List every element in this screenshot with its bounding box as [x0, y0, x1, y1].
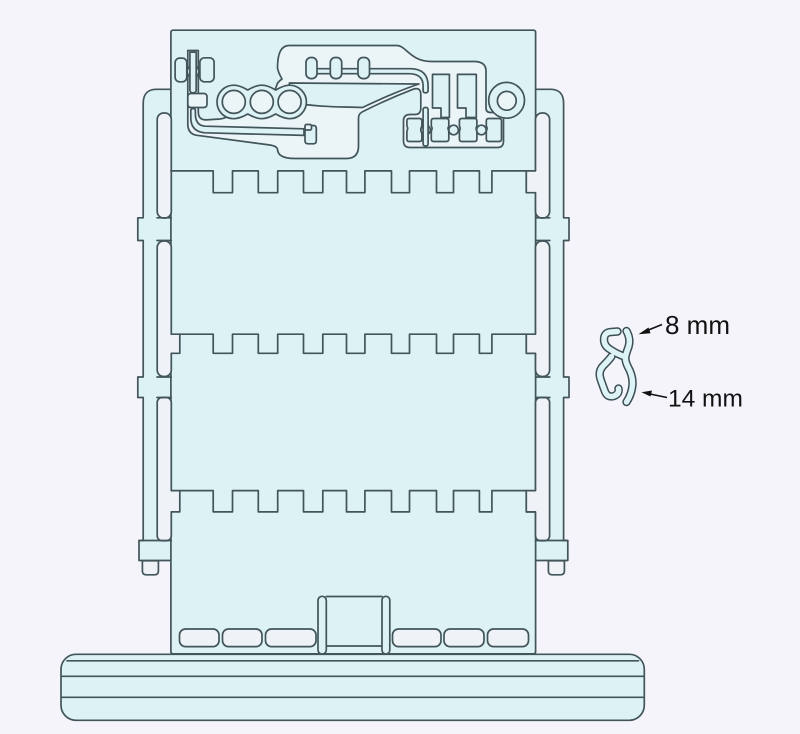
- svg-text:8 mm: 8 mm: [665, 310, 730, 340]
- svg-text:14 mm: 14 mm: [668, 386, 743, 413]
